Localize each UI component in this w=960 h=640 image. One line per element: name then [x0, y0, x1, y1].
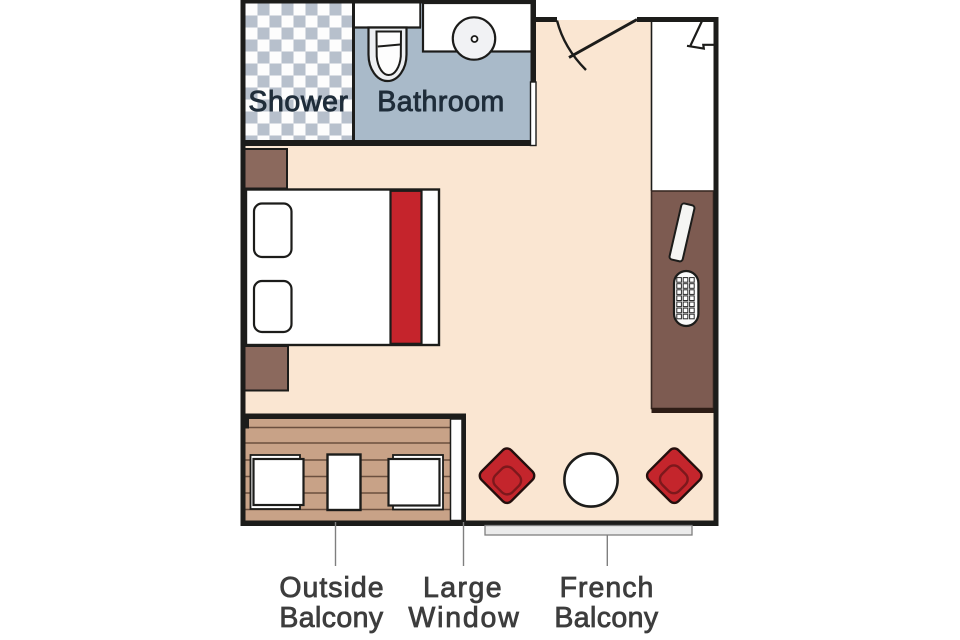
svg-text:Balcony: Balcony [554, 602, 659, 634]
svg-text:Window: Window [408, 602, 520, 634]
svg-text:Shower: Shower [248, 86, 348, 118]
svg-text:Outside: Outside [279, 572, 384, 604]
svg-text:French: French [560, 572, 655, 604]
svg-text:Large: Large [423, 572, 503, 604]
svg-text:Bathroom: Bathroom [377, 86, 505, 118]
svg-text:Balcony: Balcony [279, 602, 384, 634]
